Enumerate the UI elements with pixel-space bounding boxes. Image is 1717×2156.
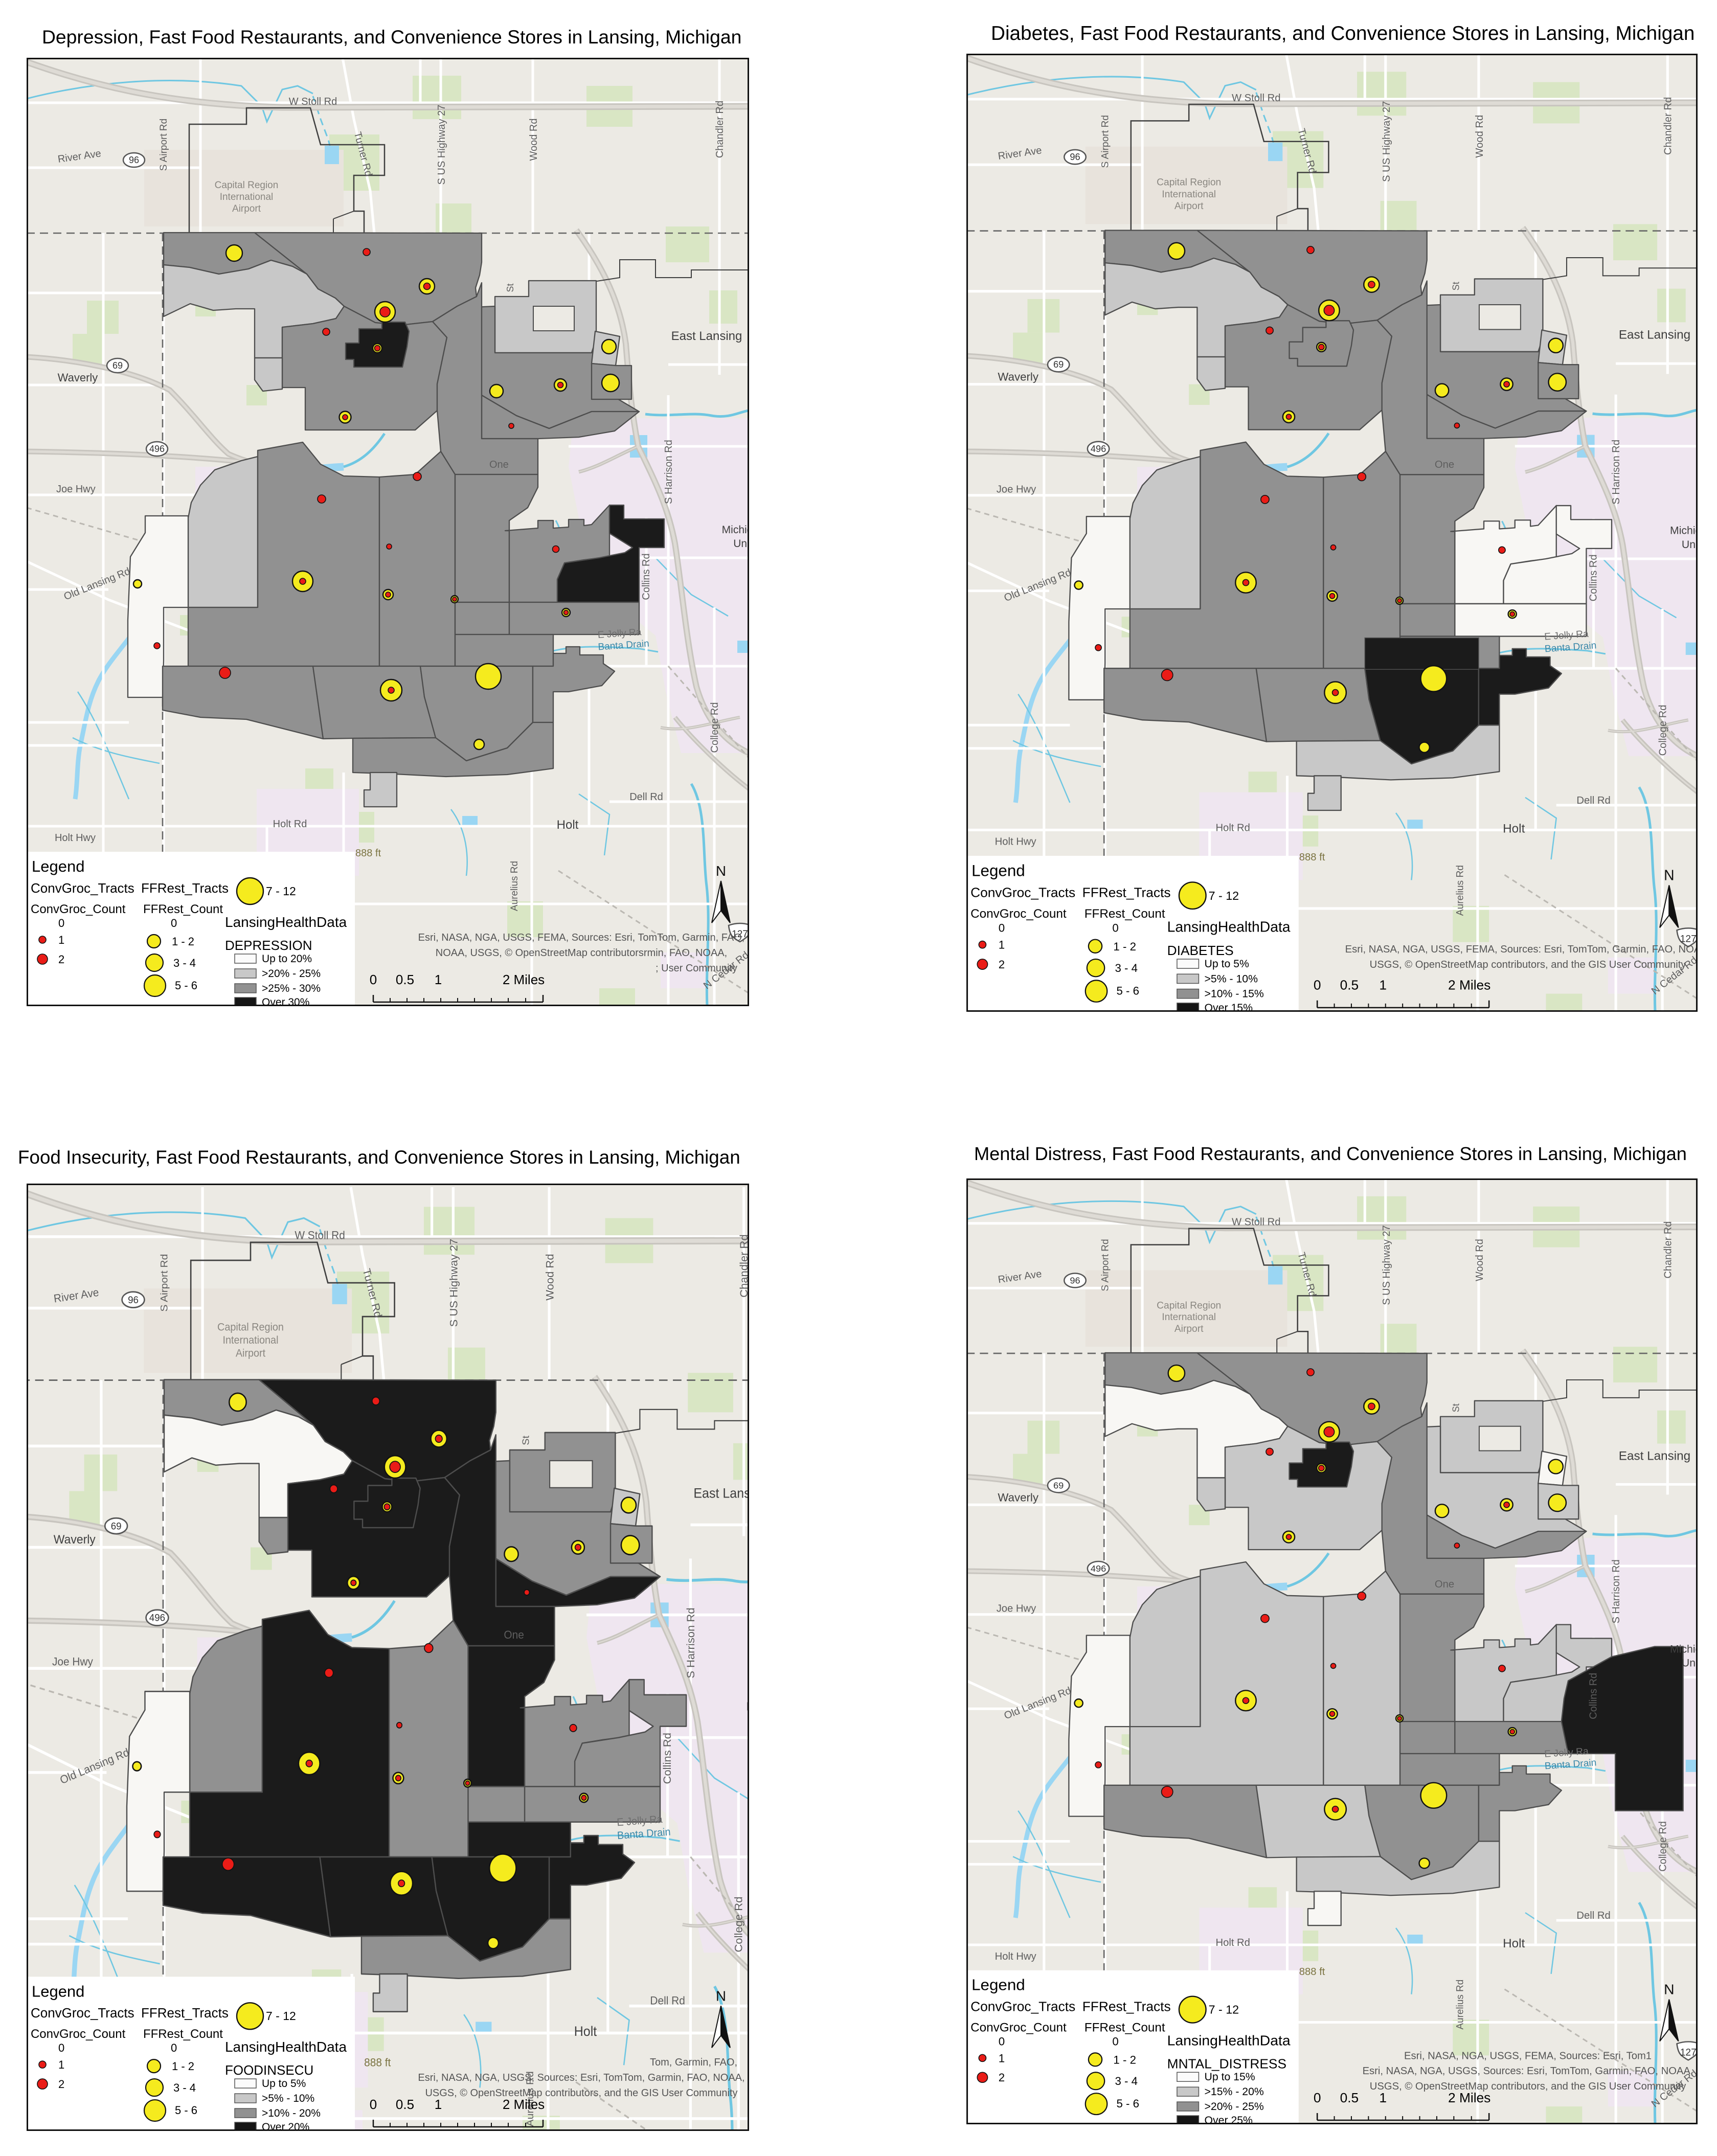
svg-text:Joe Hwy: Joe Hwy xyxy=(997,484,1036,495)
svg-text:7 - 12: 7 - 12 xyxy=(266,884,296,898)
svg-text:888 ft: 888 ft xyxy=(1299,1966,1325,1978)
svg-text:East Lansing: East Lansing xyxy=(1619,328,1690,342)
svg-text:S Airport Rd: S Airport Rd xyxy=(159,1254,170,1312)
svg-text:N: N xyxy=(716,863,726,879)
svg-text:Up to 20%: Up to 20% xyxy=(262,953,312,965)
svg-text:Legend: Legend xyxy=(972,1976,1025,1994)
svg-text:0: 0 xyxy=(1314,2090,1321,2105)
svg-text:Esri, NASA, NGA, USGS, Sources: Esri, NASA, NGA, USGS, Sources: Esri, To… xyxy=(1363,2066,1693,2077)
svg-text:FFRest_Count: FFRest_Count xyxy=(1085,907,1165,921)
svg-text:N: N xyxy=(1664,867,1674,883)
svg-text:3 - 4: 3 - 4 xyxy=(173,2081,196,2094)
svg-text:>10% - 20%: >10% - 20% xyxy=(262,2107,321,2119)
svg-text:S US Highway 27: S US Highway 27 xyxy=(1381,101,1392,182)
svg-text:St: St xyxy=(521,1435,531,1445)
svg-text:ConvGroc_Tracts: ConvGroc_Tracts xyxy=(970,1999,1075,2014)
svg-text:69: 69 xyxy=(1053,359,1064,370)
svg-text:1: 1 xyxy=(435,2097,442,2112)
svg-text:Legend: Legend xyxy=(972,861,1025,879)
svg-text:5 - 6: 5 - 6 xyxy=(1116,985,1139,997)
svg-text:East Lansing: East Lansing xyxy=(1619,1449,1690,1463)
svg-text:USGS, © OpenStreetMap contribu: USGS, © OpenStreetMap contributors, and … xyxy=(425,2087,737,2099)
svg-text:0.5: 0.5 xyxy=(396,2097,414,2112)
svg-text:LansingHealthData: LansingHealthData xyxy=(225,914,347,930)
svg-text:St: St xyxy=(1451,282,1461,290)
svg-text:0: 0 xyxy=(370,2097,377,2112)
svg-text:1: 1 xyxy=(58,2058,64,2071)
svg-text:S Airport Rd: S Airport Rd xyxy=(1100,115,1111,168)
svg-text:St: St xyxy=(1451,1403,1461,1412)
svg-text:496: 496 xyxy=(149,1613,165,1624)
svg-text:Aurelius Rd: Aurelius Rd xyxy=(1455,1980,1465,2030)
svg-text:S Harrison Rd: S Harrison Rd xyxy=(1611,440,1622,505)
svg-text:Holt: Holt xyxy=(1503,1937,1525,1950)
svg-text:FOODINSECU: FOODINSECU xyxy=(225,2062,313,2078)
svg-text:Chandler Rd: Chandler Rd xyxy=(714,101,726,158)
svg-text:Capital Region: Capital Region xyxy=(215,180,279,191)
svg-text:USGS, © OpenStreetMap contribu: USGS, © OpenStreetMap contributors, and … xyxy=(1370,959,1687,970)
svg-text:Holt Hwy: Holt Hwy xyxy=(995,1951,1036,1962)
svg-text:7 - 12: 7 - 12 xyxy=(266,2009,296,2023)
svg-text:2: 2 xyxy=(58,953,64,966)
svg-text:Capital Region: Capital Region xyxy=(1157,1300,1221,1311)
svg-text:Dell Rd: Dell Rd xyxy=(1576,1910,1610,1921)
svg-text:>25% - 30%: >25% - 30% xyxy=(262,983,321,994)
svg-text:1: 1 xyxy=(58,934,64,946)
svg-text:One: One xyxy=(489,459,509,470)
svg-text:2 Miles: 2 Miles xyxy=(1448,978,1490,993)
svg-text:1: 1 xyxy=(435,972,442,987)
svg-text:FFRest_Tracts: FFRest_Tracts xyxy=(1082,885,1171,900)
svg-text:Collins Rd: Collins Rd xyxy=(641,553,652,600)
svg-text:W Stoll Rd: W Stoll Rd xyxy=(1232,93,1281,104)
svg-text:Chandler Rd: Chandler Rd xyxy=(1662,97,1674,155)
svg-text:DIABETES: DIABETES xyxy=(1167,943,1234,958)
svg-text:0.5: 0.5 xyxy=(1340,978,1359,993)
svg-text:>20% - 25%: >20% - 25% xyxy=(262,968,321,980)
svg-text:96: 96 xyxy=(129,155,139,165)
svg-text:2: 2 xyxy=(999,958,1005,971)
svg-text:1: 1 xyxy=(1379,978,1387,993)
svg-text:Wood Rd: Wood Rd xyxy=(1474,115,1485,158)
svg-text:Joe Hwy: Joe Hwy xyxy=(997,1603,1036,1615)
svg-text:FFRest_Count: FFRest_Count xyxy=(143,902,223,916)
svg-text:0: 0 xyxy=(999,921,1005,934)
svg-text:2: 2 xyxy=(999,2071,1005,2084)
svg-text:>15% - 20%: >15% - 20% xyxy=(1205,2086,1264,2098)
svg-text:S Harrison Rd: S Harrison Rd xyxy=(663,440,674,504)
svg-text:International: International xyxy=(222,1335,278,1347)
svg-text:Waverly: Waverly xyxy=(998,1491,1038,1504)
svg-text:International: International xyxy=(220,192,274,202)
svg-text:Wood Rd: Wood Rd xyxy=(544,1254,556,1300)
svg-text:S US Highway 27: S US Highway 27 xyxy=(1381,1225,1392,1305)
svg-text:S Harrison Rd: S Harrison Rd xyxy=(685,1608,696,1678)
svg-text:Collins Rd: Collins Rd xyxy=(661,1733,673,1784)
svg-text:1 - 2: 1 - 2 xyxy=(172,2060,194,2073)
svg-text:888 ft: 888 ft xyxy=(1299,852,1325,863)
svg-text:0: 0 xyxy=(1314,978,1321,993)
svg-text:Capital Region: Capital Region xyxy=(217,1322,284,1333)
svg-text:0: 0 xyxy=(999,2035,1005,2048)
svg-text:One: One xyxy=(1435,1579,1454,1590)
svg-text:496: 496 xyxy=(1091,1563,1106,1574)
svg-text:1: 1 xyxy=(999,2052,1005,2064)
svg-text:S Harrison Rd: S Harrison Rd xyxy=(1611,1559,1622,1623)
svg-text:Dell Rd: Dell Rd xyxy=(1576,795,1610,806)
svg-text:S Airport Rd: S Airport Rd xyxy=(159,119,169,171)
svg-text:Airport: Airport xyxy=(1174,1324,1204,1334)
svg-text:NOAA, USGS, © OpenStreetMap co: NOAA, USGS, © OpenStreetMap contributors… xyxy=(436,947,727,959)
svg-text:S US Highway 27: S US Highway 27 xyxy=(436,105,447,185)
svg-text:East Lansing: East Lansing xyxy=(671,329,742,343)
svg-text:International: International xyxy=(1162,1312,1216,1323)
svg-text:Holt: Holt xyxy=(1503,822,1525,835)
svg-text:0: 0 xyxy=(370,972,377,987)
svg-text:Wood Rd: Wood Rd xyxy=(528,118,539,161)
svg-text:Waverly: Waverly xyxy=(58,371,98,384)
svg-text:Esri, NASA, NGA, USGS, FEMA, S: Esri, NASA, NGA, USGS, FEMA, Sources: Es… xyxy=(418,932,745,943)
svg-text:LansingHealthData: LansingHealthData xyxy=(1167,918,1291,935)
svg-text:0: 0 xyxy=(171,917,177,929)
svg-text:USGS, © OpenStreetMap contribu: USGS, © OpenStreetMap contributors, and … xyxy=(1370,2081,1686,2092)
svg-text:Esri, NASA, NGA, USGS, Sources: Esri, NASA, NGA, USGS, Sources: Esri, To… xyxy=(418,2072,744,2083)
svg-text:Dell Rd: Dell Rd xyxy=(629,791,663,803)
svg-text:5 - 6: 5 - 6 xyxy=(175,979,197,992)
svg-text:Holt Hwy: Holt Hwy xyxy=(55,832,96,844)
svg-text:0: 0 xyxy=(1112,921,1118,934)
svg-text:Legend: Legend xyxy=(32,1982,84,2000)
svg-text:1 - 2: 1 - 2 xyxy=(1113,940,1136,953)
svg-text:DEPRESSION: DEPRESSION xyxy=(225,938,312,953)
svg-text:FFRest_Count: FFRest_Count xyxy=(143,2027,223,2041)
svg-text:888 ft: 888 ft xyxy=(364,2056,391,2069)
svg-text:7 - 12: 7 - 12 xyxy=(1209,889,1239,902)
svg-text:0: 0 xyxy=(58,917,64,929)
svg-text:W Stoll Rd: W Stoll Rd xyxy=(295,1229,345,1242)
svg-text:International: International xyxy=(1162,189,1216,200)
svg-text:Up to 5%: Up to 5% xyxy=(1205,958,1249,970)
svg-text:Holt Hwy: Holt Hwy xyxy=(995,836,1037,848)
svg-text:0: 0 xyxy=(171,2041,177,2054)
svg-text:Capital Region: Capital Region xyxy=(1157,177,1221,188)
svg-text:1: 1 xyxy=(1379,2090,1387,2105)
svg-text:N: N xyxy=(716,1988,726,2004)
svg-text:2 Miles: 2 Miles xyxy=(503,2097,545,2112)
svg-text:Airport: Airport xyxy=(236,1348,266,1359)
svg-text:Legend: Legend xyxy=(32,857,84,875)
svg-text:127: 127 xyxy=(1680,2047,1697,2058)
svg-text:Michig: Michig xyxy=(1670,525,1698,537)
svg-text:Holt Rd: Holt Rd xyxy=(1215,822,1250,833)
svg-text:69: 69 xyxy=(112,360,123,371)
svg-text:ConvGroc_Count: ConvGroc_Count xyxy=(31,902,126,916)
svg-text:5 - 6: 5 - 6 xyxy=(1116,2097,1139,2110)
svg-text:LansingHealthData: LansingHealthData xyxy=(225,2039,347,2055)
svg-text:LansingHealthData: LansingHealthData xyxy=(1167,2033,1291,2049)
svg-text:ConvGroc_Tracts: ConvGroc_Tracts xyxy=(31,2005,134,2021)
svg-text:Collins Rd: Collins Rd xyxy=(1588,554,1599,601)
svg-text:ConvGroc_Count: ConvGroc_Count xyxy=(970,907,1067,921)
svg-text:Aurelius Rd: Aurelius Rd xyxy=(509,861,520,911)
svg-text:Up to 5%: Up to 5% xyxy=(262,2078,306,2090)
svg-text:East Lansing: East Lansing xyxy=(693,1486,749,1501)
svg-text:Waverly: Waverly xyxy=(998,371,1038,383)
svg-text:127: 127 xyxy=(1680,934,1697,945)
svg-text:>5% - 10%: >5% - 10% xyxy=(1205,973,1258,985)
svg-text:Waverly: Waverly xyxy=(54,1532,96,1546)
svg-text:Tom, Garmin, FAO,: Tom, Garmin, FAO, xyxy=(650,2057,737,2068)
svg-text:3 - 4: 3 - 4 xyxy=(173,957,196,969)
svg-text:S Airport Rd: S Airport Rd xyxy=(1100,1239,1111,1291)
svg-text:ConvGroc_Tracts: ConvGroc_Tracts xyxy=(31,880,134,896)
svg-text:Chandler Rd: Chandler Rd xyxy=(1662,1221,1674,1279)
svg-text:7 - 12: 7 - 12 xyxy=(1209,2003,1239,2016)
svg-text:>10% - 15%: >10% - 15% xyxy=(1205,988,1264,1000)
svg-text:2 Miles: 2 Miles xyxy=(1448,2090,1490,2105)
svg-text:96: 96 xyxy=(1070,152,1080,162)
svg-text:5 - 6: 5 - 6 xyxy=(175,2104,197,2117)
svg-text:69: 69 xyxy=(111,1521,122,1532)
svg-text:496: 496 xyxy=(1091,444,1106,454)
svg-text:3 - 4: 3 - 4 xyxy=(1115,2075,1138,2087)
svg-text:Chandler Rd: Chandler Rd xyxy=(738,1234,749,1298)
svg-text:Uni: Uni xyxy=(1682,539,1698,551)
svg-text:2 Miles: 2 Miles xyxy=(503,972,545,987)
svg-text:Aurelius Rd: Aurelius Rd xyxy=(1455,865,1466,916)
svg-text:College Rd: College Rd xyxy=(1657,705,1668,756)
svg-text:96: 96 xyxy=(128,1295,139,1306)
svg-text:1 - 2: 1 - 2 xyxy=(172,935,194,948)
svg-text:0: 0 xyxy=(58,2041,64,2054)
svg-text:Up to 15%: Up to 15% xyxy=(1205,2071,1255,2083)
svg-text:Joe Hwy: Joe Hwy xyxy=(56,484,96,495)
svg-text:; User Community: ; User Community xyxy=(656,963,737,974)
svg-text:FFRest_Tracts: FFRest_Tracts xyxy=(141,2005,229,2021)
svg-text:College Rd: College Rd xyxy=(733,1897,744,1953)
svg-text:Airport: Airport xyxy=(232,203,261,214)
svg-text:Esri, NASA, NGA, USGS, FEMA, S: Esri, NASA, NGA, USGS, FEMA, Sources: Es… xyxy=(1404,2050,1652,2061)
svg-text:Joe Hwy: Joe Hwy xyxy=(52,1655,93,1668)
svg-text:N: N xyxy=(1664,1982,1674,1998)
svg-text:>5% - 10%: >5% - 10% xyxy=(262,2093,314,2104)
svg-text:S US Highway 27: S US Highway 27 xyxy=(448,1239,460,1327)
svg-text:3 - 4: 3 - 4 xyxy=(1115,962,1138,974)
svg-text:0.5: 0.5 xyxy=(1340,2090,1359,2105)
svg-text:Holt: Holt xyxy=(574,2024,597,2039)
svg-text:1: 1 xyxy=(999,939,1005,951)
svg-text:>20% - 25%: >20% - 25% xyxy=(1205,2101,1264,2113)
svg-text:FFRest_Tracts: FFRest_Tracts xyxy=(141,880,229,896)
svg-text:Esri, NASA, NGA, USGS, FEMA, S: Esri, NASA, NGA, USGS, FEMA, Sources: Es… xyxy=(1345,944,1698,955)
svg-text:Uni: Uni xyxy=(1682,1658,1698,1669)
svg-text:Holt Rd: Holt Rd xyxy=(273,819,307,830)
svg-text:888 ft: 888 ft xyxy=(355,848,381,859)
svg-text:1 - 2: 1 - 2 xyxy=(1113,2053,1136,2066)
svg-text:Airport: Airport xyxy=(1174,201,1204,212)
svg-text:0.5: 0.5 xyxy=(396,972,414,987)
svg-text:96: 96 xyxy=(1070,1276,1080,1286)
svg-text:ConvGroc_Count: ConvGroc_Count xyxy=(970,2021,1067,2035)
svg-text:Michig: Michig xyxy=(722,524,749,536)
svg-text:Holt Rd: Holt Rd xyxy=(1215,1937,1250,1948)
svg-text:ConvGroc_Count: ConvGroc_Count xyxy=(31,2027,126,2041)
svg-text:Uni: Uni xyxy=(733,538,749,550)
svg-text:ConvGroc_Tracts: ConvGroc_Tracts xyxy=(970,885,1075,900)
svg-text:2: 2 xyxy=(58,2078,64,2091)
svg-text:Dell Rd: Dell Rd xyxy=(650,1994,685,2007)
svg-text:69: 69 xyxy=(1053,1480,1064,1490)
svg-text:St: St xyxy=(505,283,515,292)
svg-text:College Rd: College Rd xyxy=(1657,1821,1668,1872)
svg-text:One: One xyxy=(504,1628,524,1641)
svg-text:College Rd: College Rd xyxy=(709,702,720,753)
svg-text:W Stoll Rd: W Stoll Rd xyxy=(1232,1217,1281,1228)
svg-text:496: 496 xyxy=(149,444,165,454)
svg-text:FFRest_Count: FFRest_Count xyxy=(1085,2021,1165,2035)
svg-text:Holt: Holt xyxy=(557,818,579,832)
svg-text:0: 0 xyxy=(1112,2035,1118,2048)
svg-text:One: One xyxy=(1435,459,1454,470)
svg-text:Collins Rd: Collins Rd xyxy=(1588,1673,1599,1719)
svg-text:Michig: Michig xyxy=(1670,1644,1698,1655)
svg-text:FFRest_Tracts: FFRest_Tracts xyxy=(1082,1999,1171,2014)
svg-text:Wood Rd: Wood Rd xyxy=(1474,1239,1485,1281)
svg-text:MNTAL_DISTRESS: MNTAL_DISTRESS xyxy=(1167,2056,1286,2071)
svg-text:W Stoll Rd: W Stoll Rd xyxy=(289,96,337,107)
